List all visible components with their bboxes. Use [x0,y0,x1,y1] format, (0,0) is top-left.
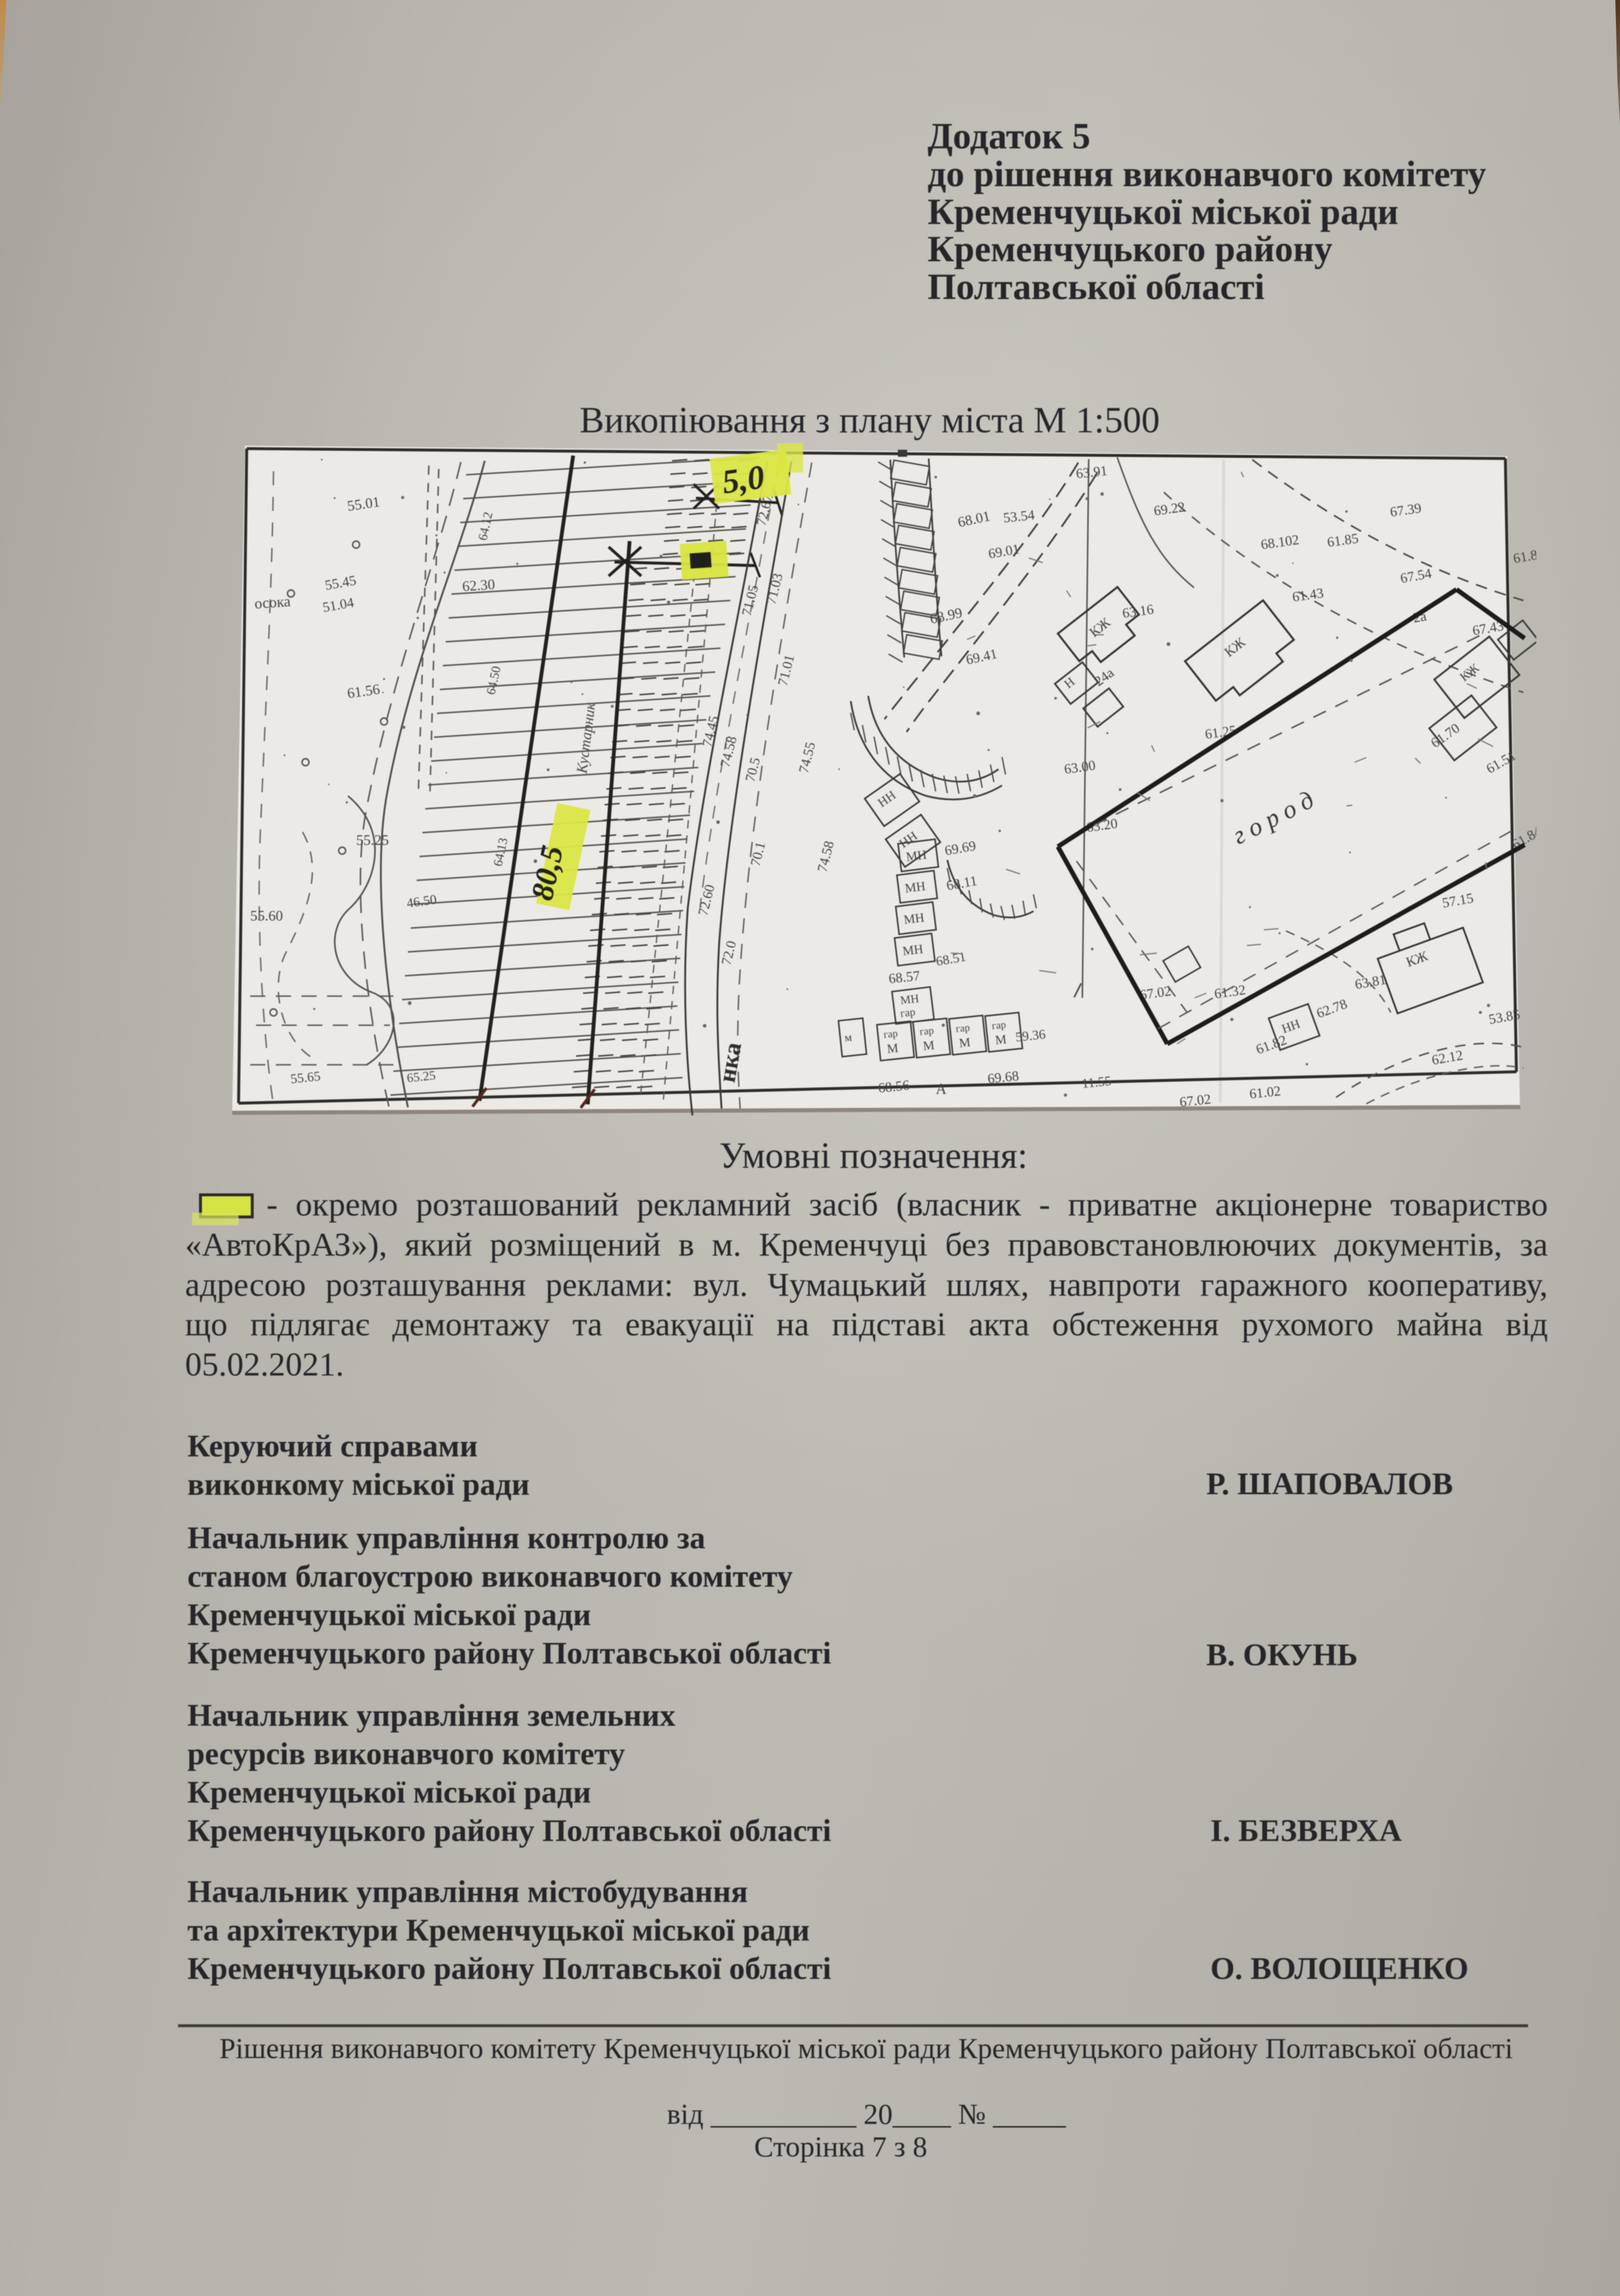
svg-text:гар: гар [919,1025,934,1037]
svg-text:61.80: 61.80 [1512,546,1536,567]
svg-text:гар: гар [955,1022,970,1035]
svg-text:МН: МН [900,992,920,1007]
svg-text:М: М [958,1035,971,1050]
svg-text:11.55: 11.55 [1081,1074,1112,1091]
svg-text:МН: МН [904,879,926,895]
svg-text:55.25: 55.25 [356,833,389,848]
svg-text:гар: гар [900,1006,916,1020]
svg-text:осока: осока [254,593,291,612]
svg-text:М: М [886,1040,899,1056]
svg-text:МН: МН [903,910,925,927]
svg-text:5,0: 5,0 [720,457,767,500]
svg-text:МН: МН [905,847,928,864]
svg-text:гар: гар [991,1019,1006,1032]
svg-text:МН: МН [902,941,924,958]
svg-text:м: м [844,1031,852,1044]
svg-text:А: А [936,1081,947,1097]
svg-text:55.60: 55.60 [250,908,283,924]
svg-text:М: М [994,1032,1007,1047]
svg-text:гар: гар [883,1028,898,1040]
svg-text:М: М [922,1037,935,1053]
